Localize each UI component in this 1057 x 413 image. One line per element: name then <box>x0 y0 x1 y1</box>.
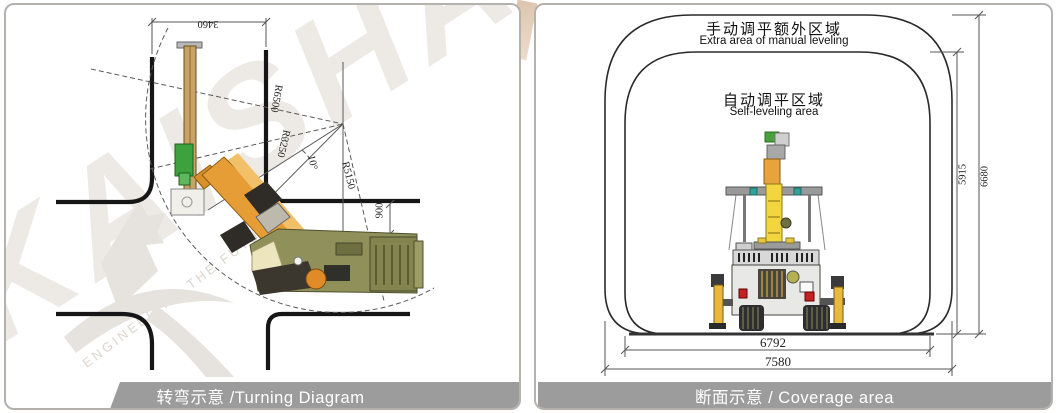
right-caption-bar: 断面示意 / Coverage area <box>538 382 1051 409</box>
dim-label-inner-width: 6792 <box>743 335 803 351</box>
turning-diagram-canvas <box>6 5 519 408</box>
dimension-900-lines <box>386 200 394 238</box>
inner-area-label-en: Self-leveling area <box>624 106 924 118</box>
coverage-area-panel: 手动调平额外区域 Extra area of manual leveling 自… <box>534 3 1053 410</box>
dim-label-outer-width: 7580 <box>748 354 808 370</box>
turning-diagram-panel: KAISHAN ENGINEERING THE FUTURE <box>4 3 521 410</box>
left-caption-bar: 转弯示意 /Turning Diagram <box>110 382 519 409</box>
dim-label-outer-height: 6680 <box>980 157 991 197</box>
drill-rig-top-view <box>171 42 423 295</box>
dim-label-edge-clearance: 900 <box>375 191 386 231</box>
left-caption-text: 转弯示意 /Turning Diagram <box>157 384 365 408</box>
outrigger-left <box>709 274 726 329</box>
drill-rig-front-view <box>709 132 846 331</box>
outer-area-label-en: Extra area of manual leveling <box>624 35 924 47</box>
feed-mast-vertical <box>171 42 204 215</box>
dim-label-road-width: 3460 <box>184 18 232 29</box>
kaishan-logo-watermark <box>64 201 234 377</box>
rig-body-top-view <box>250 229 423 295</box>
right-caption-text: 断面示意 / Coverage area <box>695 384 894 408</box>
dim-label-inner-height: 5915 <box>958 155 969 195</box>
